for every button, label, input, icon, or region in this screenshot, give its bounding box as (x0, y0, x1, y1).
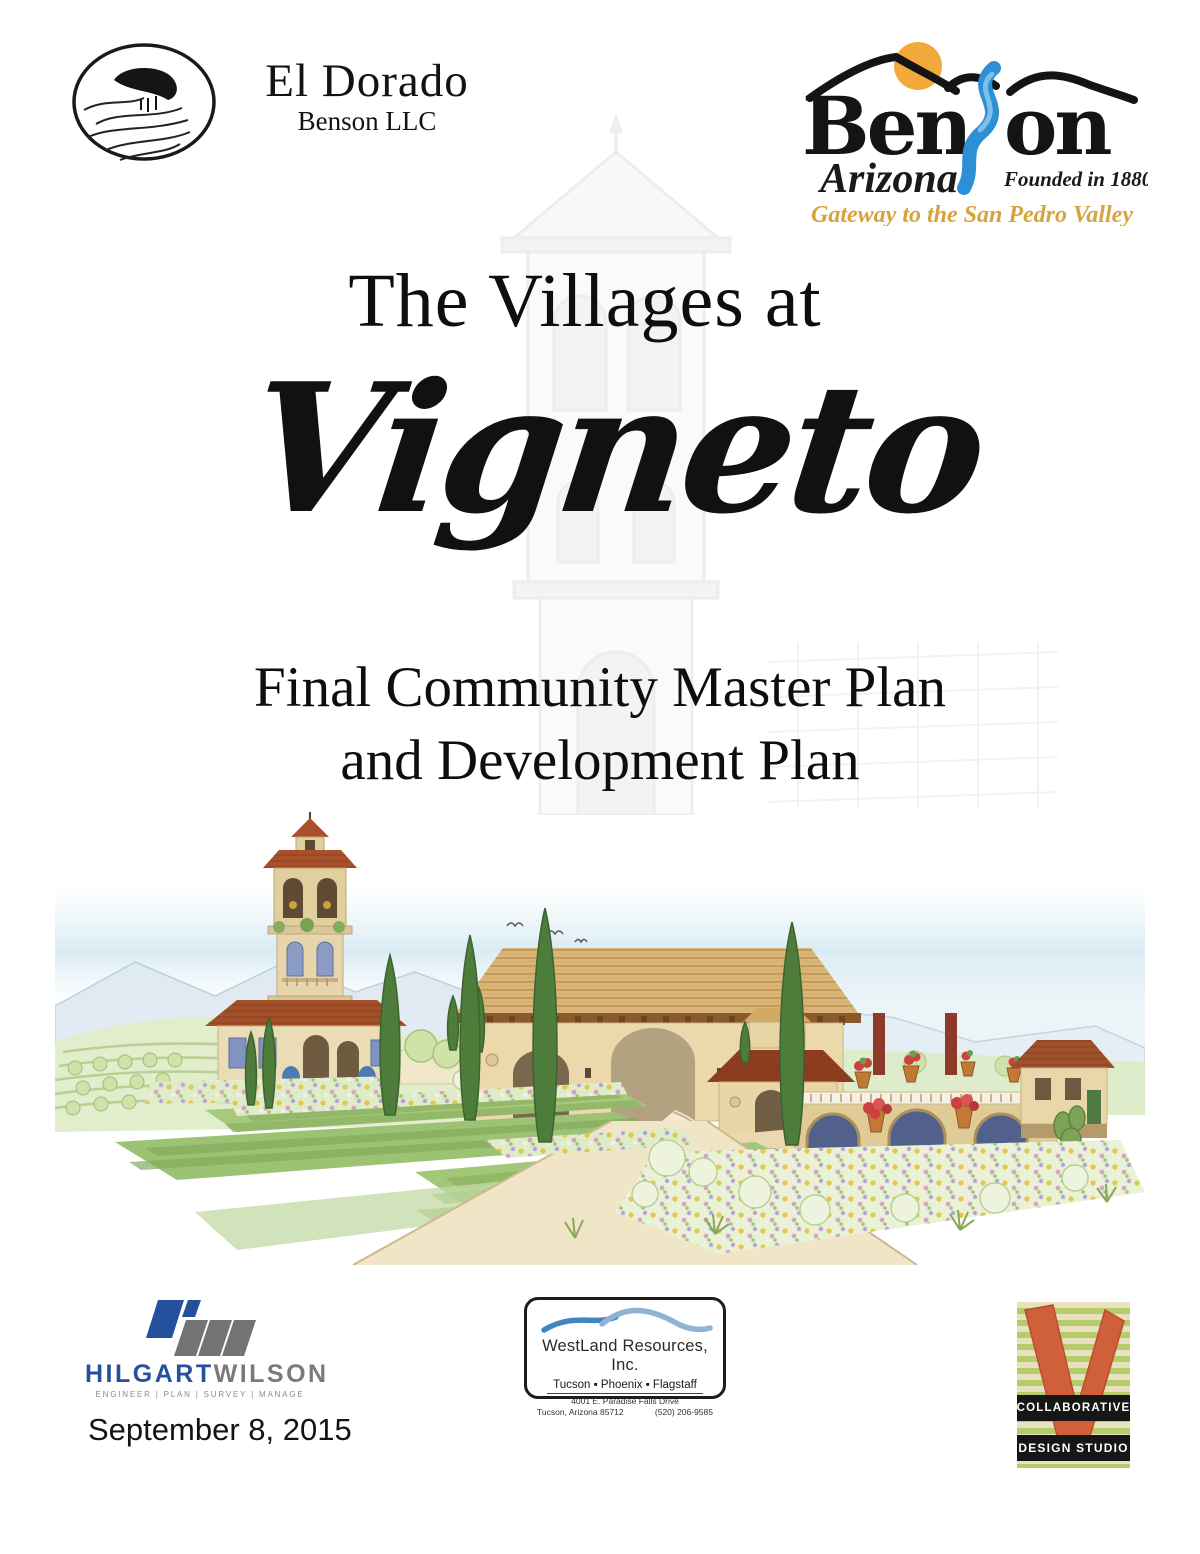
westland-cities: Tucson ▪ Phoenix ▪ Flagstaff (547, 1379, 703, 1394)
project-name-script: Vigneto (0, 338, 1200, 561)
document-cover: El Dorado Benson LLC Ben on Arizona Foun… (0, 0, 1200, 1554)
eldorado-name: El Dorado (236, 58, 498, 105)
hilgartwilson-name: HILGARTWILSON (85, 1362, 315, 1387)
hilgart-word: HILGART (85, 1360, 214, 1388)
westland-logo-card: WestLand Resources, Inc. Tucson ▪ Phoeni… (524, 1297, 726, 1399)
eldorado-emblem-icon (68, 40, 220, 166)
document-date: September 8, 2015 (88, 1412, 352, 1448)
benson-word-end: on (1004, 79, 1111, 173)
eldorado-benson-logo: El Dorado Benson LLC (68, 40, 498, 180)
subtitle-line1: Final Community Master Plan (0, 652, 1200, 725)
subtitle: Final Community Master Plan and Developm… (0, 652, 1200, 798)
hilgartwilson-tagline: ENGINEER | PLAN | SURVEY | MANAGE (85, 1390, 315, 1399)
collaborative-design-studio-logo: COLLABORATIVE DESIGN STUDIO (1017, 1302, 1130, 1468)
benson-founded: Founded in 1880 (1003, 167, 1148, 191)
westland-mountain-icon (530, 1300, 720, 1334)
collaborative-word: COLLABORATIVE (1017, 1395, 1130, 1421)
benson-state: Arizona (817, 156, 958, 202)
subtitle-line2: and Development Plan (0, 725, 1200, 798)
hilgartwilson-mark-icon (142, 1300, 258, 1358)
eldorado-subname: Benson LLC (236, 107, 498, 137)
westland-city: Tucson, Arizona 85712 (537, 1407, 624, 1417)
hilgartwilson-logo: HILGARTWILSON ENGINEER | PLAN | SURVEY |… (85, 1300, 315, 1399)
design-studio-word: DESIGN STUDIO (1017, 1435, 1130, 1461)
eldorado-text: El Dorado Benson LLC (236, 58, 498, 137)
westland-address1: 4001 E. Paradise Falls Drive (527, 1396, 723, 1407)
benson-arizona-logo: Ben on Arizona Founded in 1880 Gateway t… (798, 36, 1148, 226)
wilson-word: WILSON (214, 1360, 329, 1388)
westland-phone: (520) 206-9585 (655, 1407, 713, 1417)
cover-illustration (55, 810, 1145, 1265)
westland-company: WestLand Resources, Inc. (527, 1337, 723, 1375)
benson-tagline: Gateway to the San Pedro Valley (811, 202, 1133, 226)
pre-title: The Villages at (0, 258, 1170, 345)
